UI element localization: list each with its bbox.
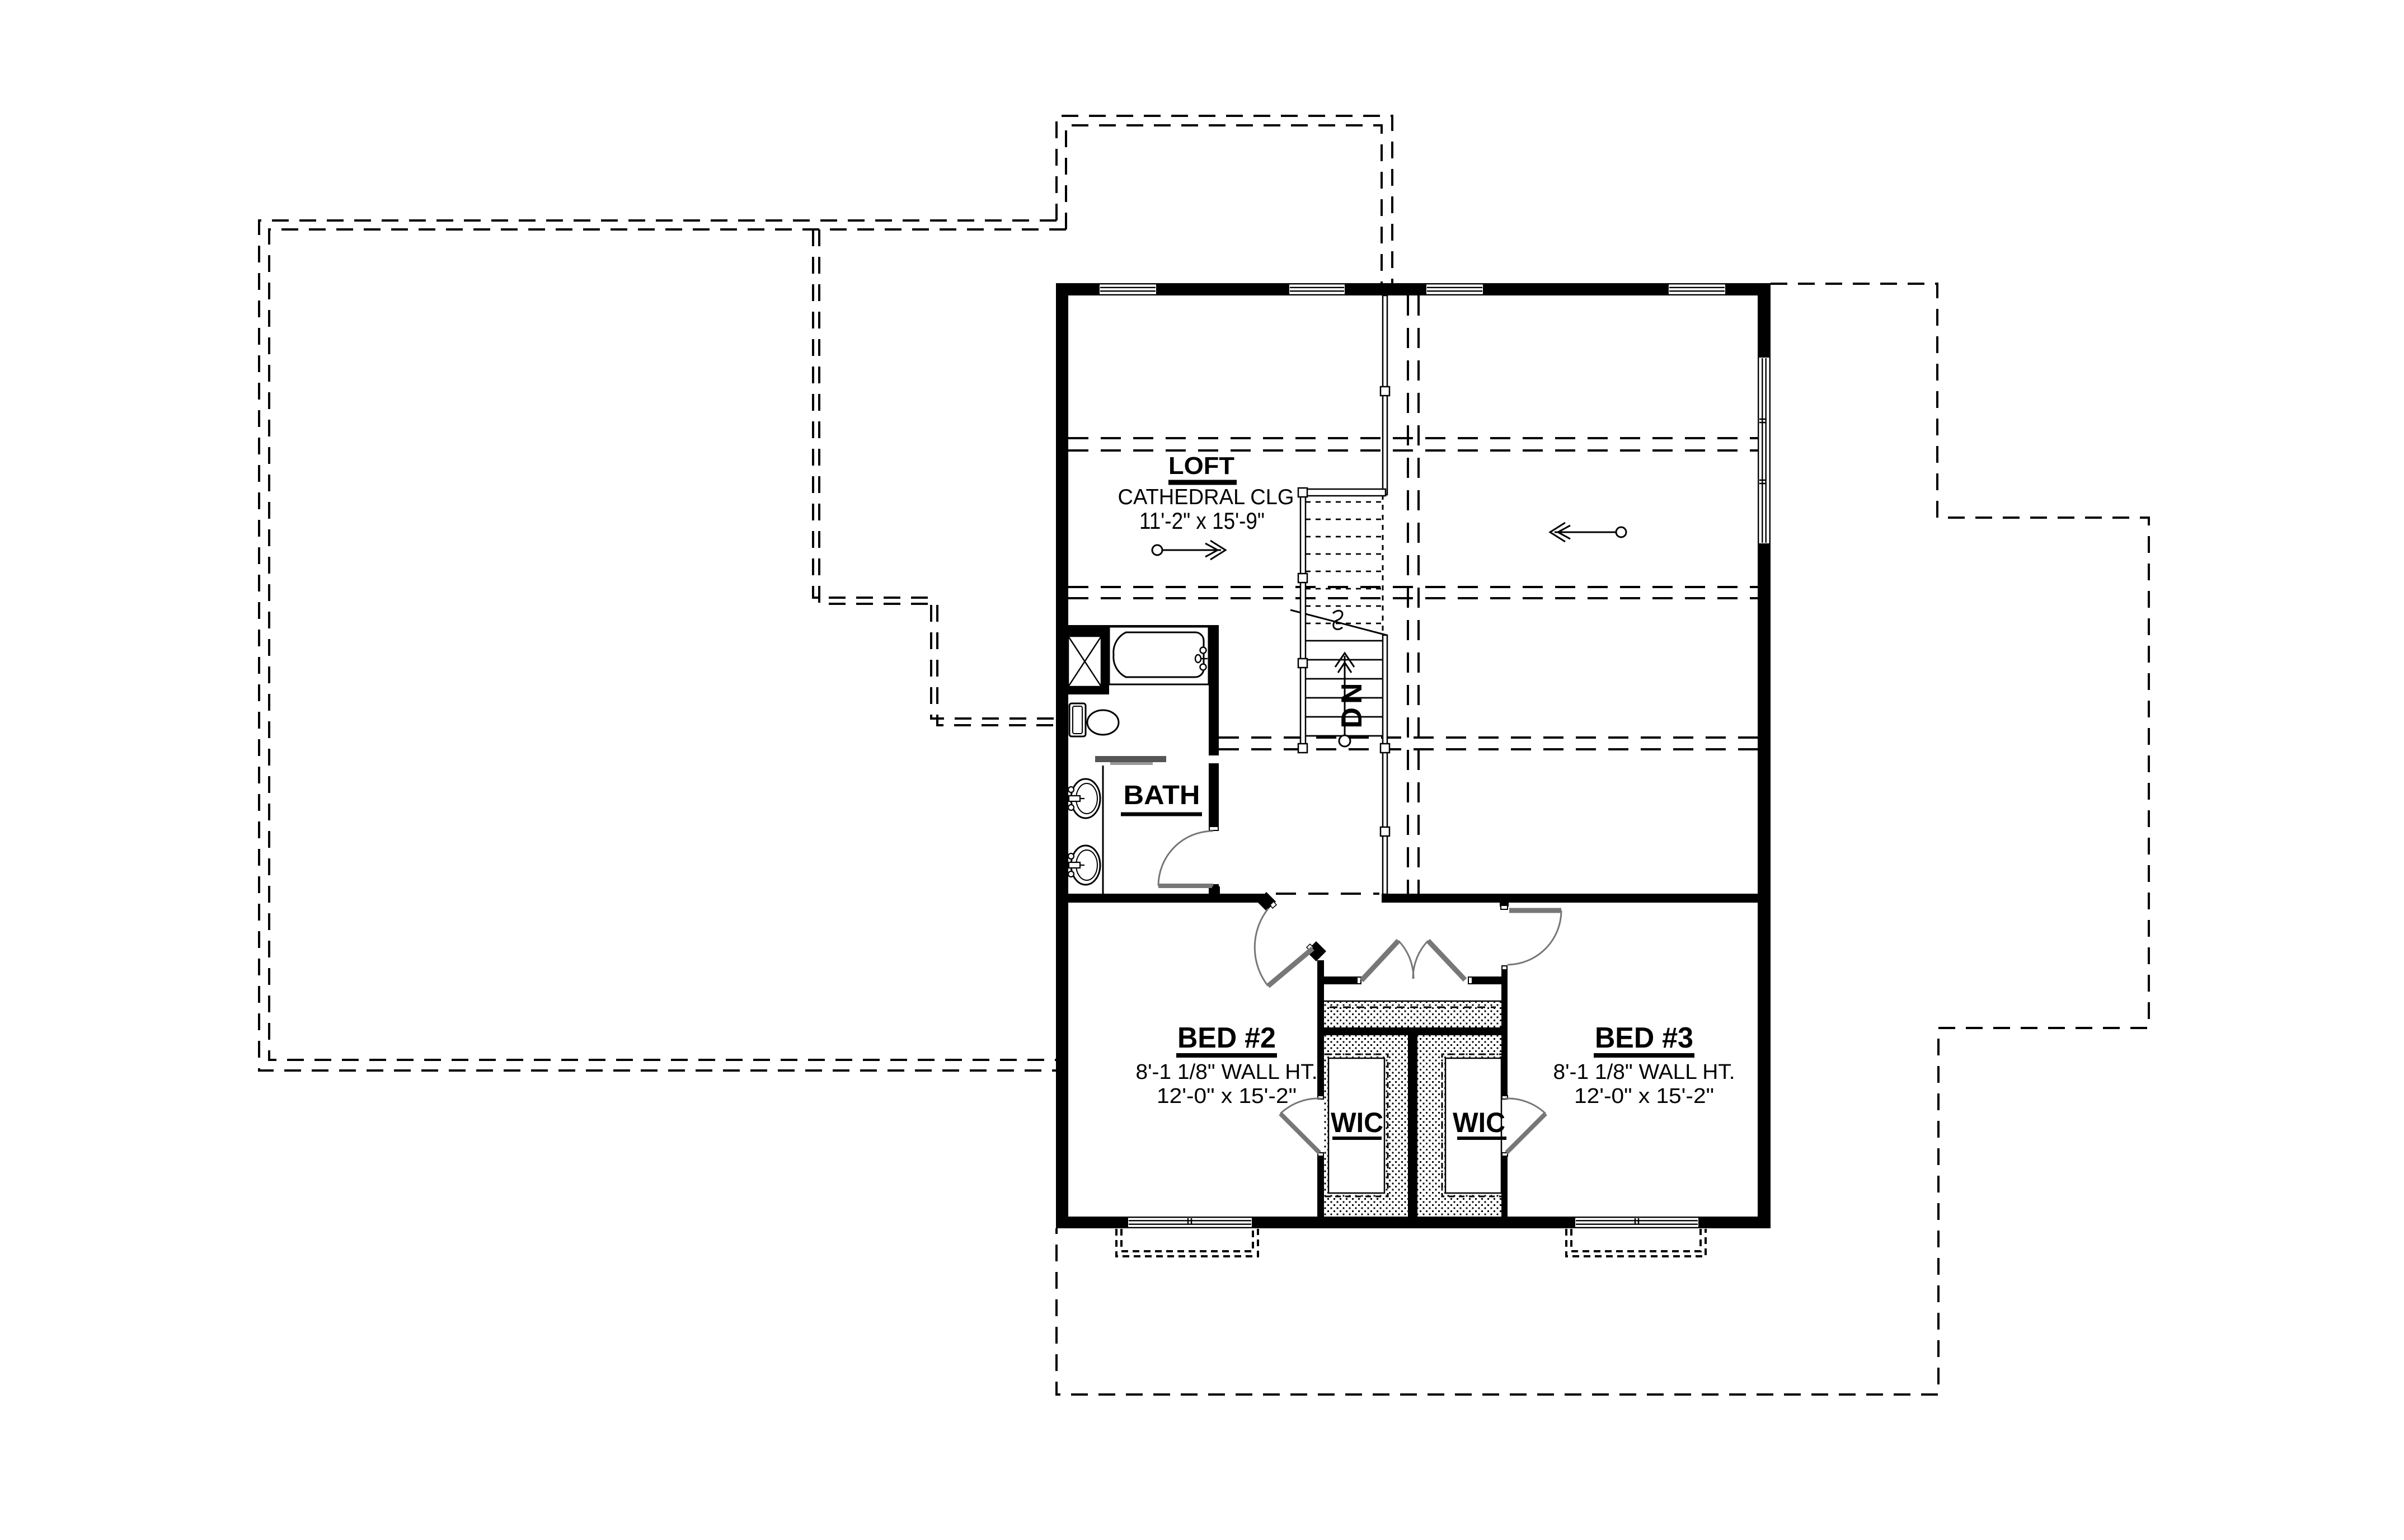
svg-text:BED #2: BED #2 — [1177, 1022, 1276, 1054]
svg-text:CATHEDRAL CLG: CATHEDRAL CLG — [1118, 485, 1294, 509]
svg-text:8'-1 1/8" WALL HT.: 8'-1 1/8" WALL HT. — [1553, 1060, 1735, 1084]
svg-text:DN: DN — [1336, 679, 1368, 728]
svg-text:12'-0" x 15'-2": 12'-0" x 15'-2" — [1574, 1084, 1714, 1108]
svg-text:WIC: WIC — [1453, 1107, 1505, 1138]
svg-text:WIC: WIC — [1331, 1107, 1383, 1138]
svg-text:11'-2" x 15'-9": 11'-2" x 15'-9" — [1139, 508, 1265, 534]
svg-text:BED #3: BED #3 — [1595, 1022, 1693, 1054]
svg-text:BATH: BATH — [1124, 781, 1200, 810]
svg-text:LOFT: LOFT — [1168, 452, 1234, 480]
svg-text:8'-1 1/8" WALL HT.: 8'-1 1/8" WALL HT. — [1136, 1060, 1318, 1084]
svg-text:12'-0" x 15'-2": 12'-0" x 15'-2" — [1157, 1084, 1297, 1108]
